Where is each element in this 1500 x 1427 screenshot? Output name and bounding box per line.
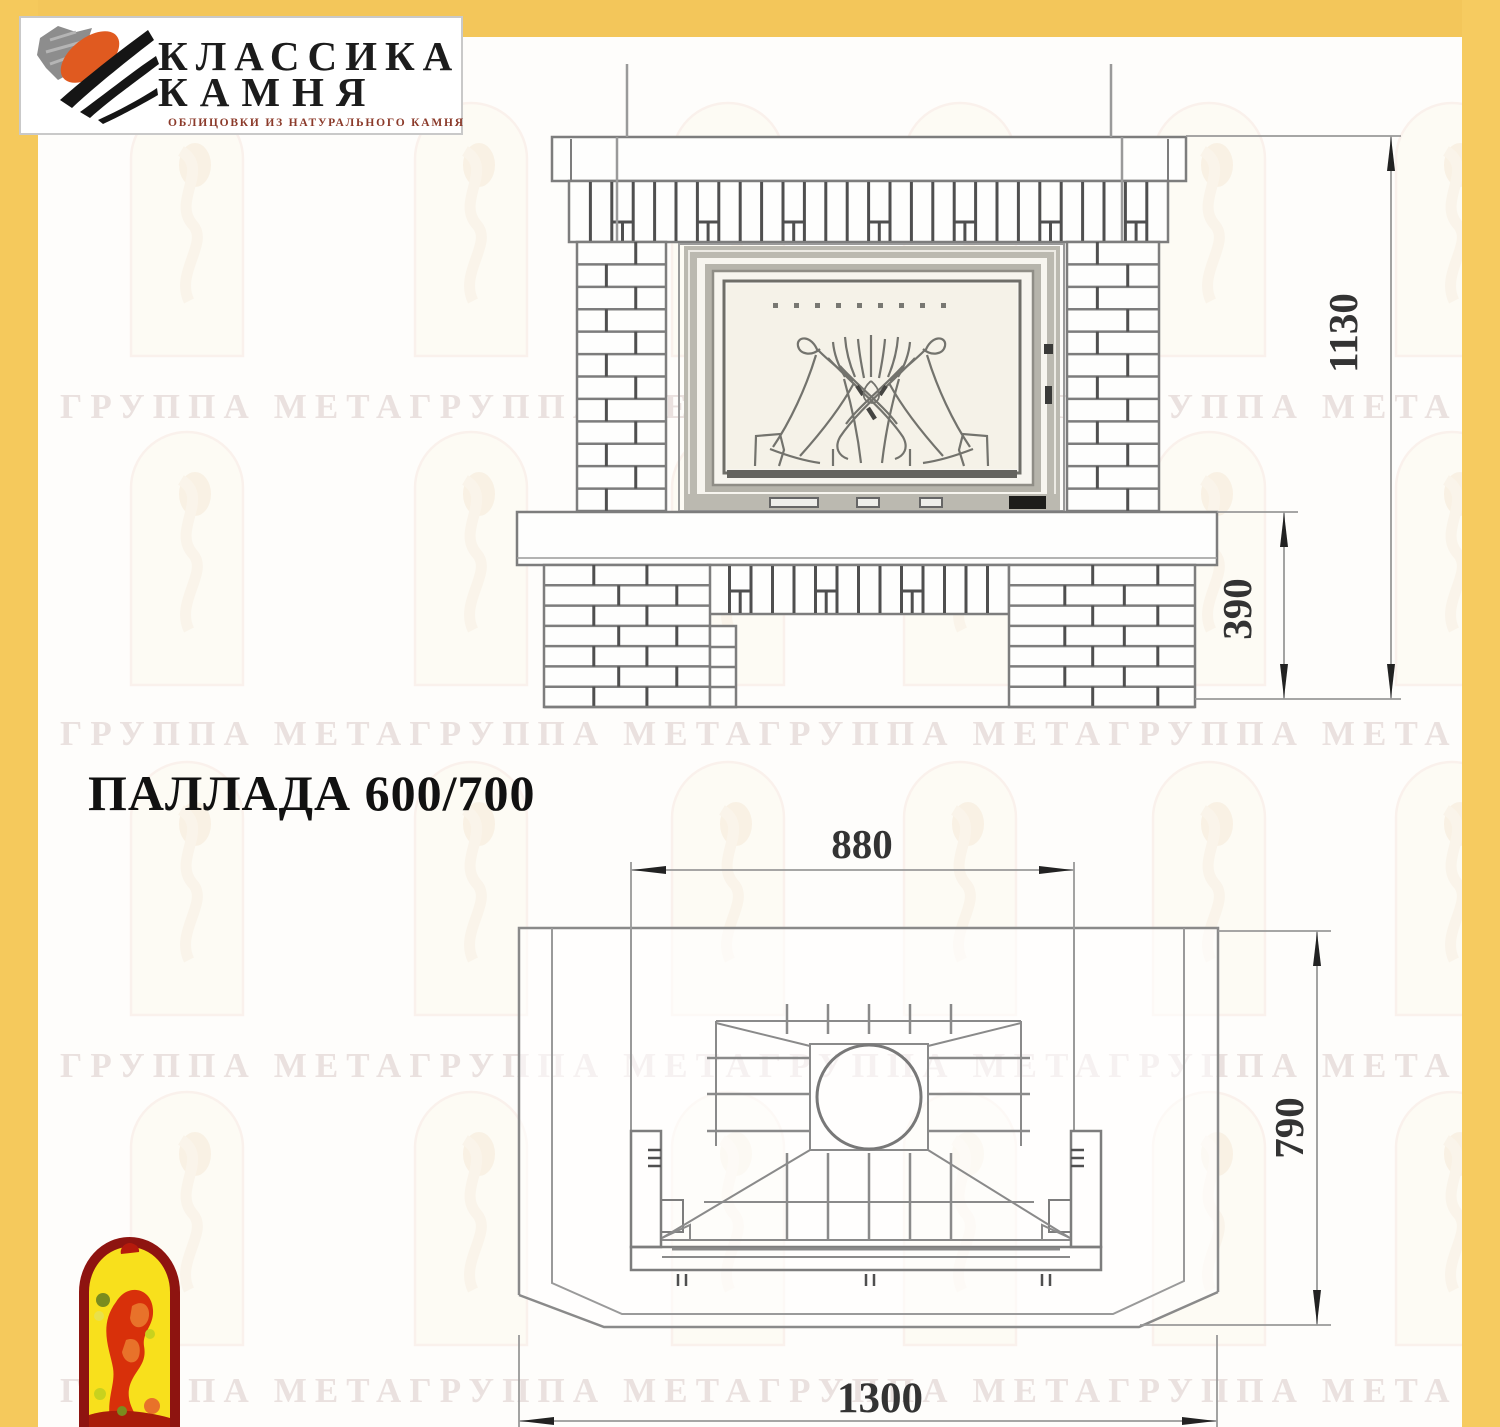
svg-text:390: 390 (1214, 578, 1260, 640)
svg-text:КАМНЯ: КАМНЯ (158, 69, 378, 115)
svg-text:ОБЛИЦОВКИ ИЗ НАТУРАЛЬНОГО КАМН: ОБЛИЦОВКИ ИЗ НАТУРАЛЬНОГО КАМНЯ (168, 117, 465, 129)
svg-text:880: 880 (831, 821, 893, 867)
svg-text:1300: 1300 (837, 1375, 923, 1422)
svg-text:790: 790 (1266, 1097, 1312, 1159)
svg-text:1130: 1130 (1320, 293, 1366, 373)
